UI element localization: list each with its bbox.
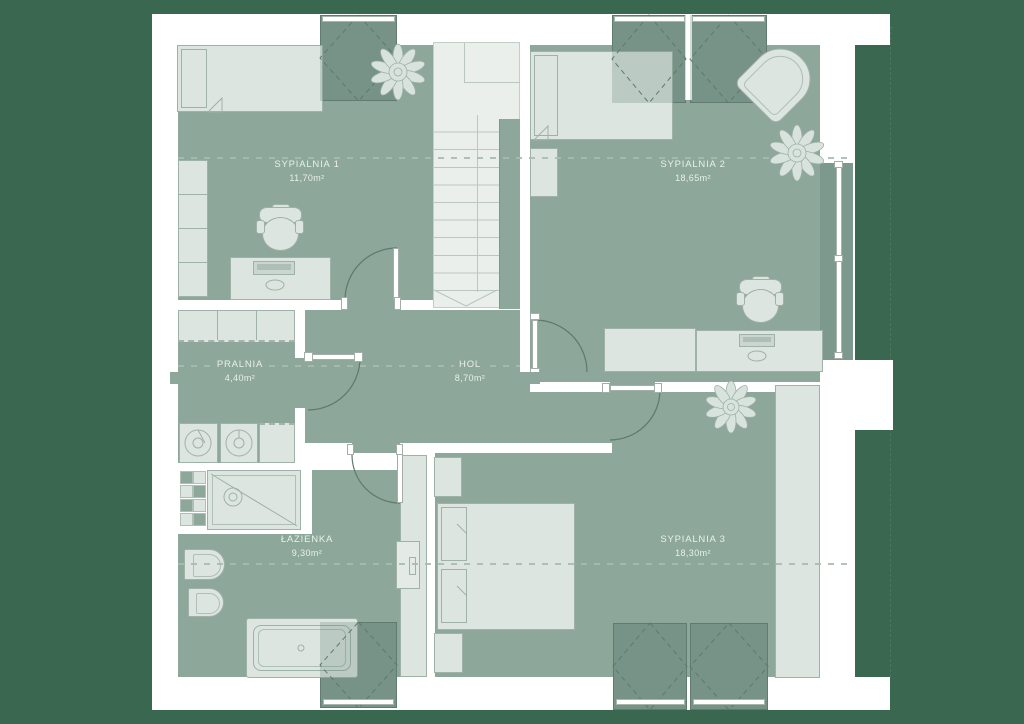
room-name: PRALNIA [212, 359, 268, 370]
room-area: 4,40m² [170, 372, 310, 384]
desk-chair [737, 276, 783, 322]
desk-chair [257, 204, 303, 250]
window-frame [692, 16, 765, 22]
room-name: ŁAZIENKA [281, 534, 333, 545]
floor-plan: SYPIALNIA 1 11,70m² SYPIALNIA 2 18,65m² … [0, 0, 1024, 724]
room-area: 18,30m² [623, 547, 763, 559]
door-jamb [654, 383, 662, 393]
door-jamb [396, 444, 403, 455]
window-frame [323, 699, 394, 705]
shower-detail [211, 474, 297, 526]
door-leaf [397, 453, 403, 503]
window-jamb [834, 352, 843, 359]
door-leaf [610, 385, 660, 391]
window-frame [614, 16, 685, 22]
room-label-lazienka: ŁAZIENKA 9,30m² [237, 534, 377, 559]
room-label-hol: HOL 8,70m² [400, 359, 540, 384]
door-leaf [393, 248, 399, 300]
room-area: 11,70m² [237, 172, 377, 184]
window-frame [322, 16, 395, 22]
door-leaf [308, 354, 360, 360]
room-area: 18,65m² [623, 172, 763, 184]
room-label-sypialnia-2: SYPIALNIA 2 18,65m² [623, 159, 763, 184]
window-jamb [834, 255, 843, 262]
room-name: SYPIALNIA 3 [660, 534, 725, 545]
room-name: SYPIALNIA 2 [660, 159, 725, 170]
stair-arrow [434, 290, 497, 306]
door-jamb [341, 297, 348, 310]
room-name: HOL [454, 359, 486, 370]
door-jamb [347, 444, 354, 455]
window-frame [616, 699, 685, 705]
bathtub-drain [298, 645, 304, 651]
door-jamb [530, 313, 540, 320]
room-name: SYPIALNIA 1 [274, 159, 339, 170]
door-jamb [354, 352, 363, 362]
room-label-pralnia: PRALNIA 4,40m² [170, 359, 310, 384]
room-label-sypialnia-3: SYPIALNIA 3 18,30m² [623, 534, 763, 559]
window-frame [693, 699, 765, 705]
window-jamb [834, 161, 843, 168]
skylight-diamonds [320, 15, 768, 710]
appliance-drums [185, 430, 252, 456]
room-label-sypialnia-1: SYPIALNIA 1 11,70m² [237, 159, 377, 184]
door-jamb [602, 383, 610, 393]
room-area: 9,30m² [237, 547, 377, 559]
room-area: 8,70m² [400, 372, 540, 384]
mouse-icons [266, 280, 766, 361]
door-jamb [394, 297, 401, 310]
